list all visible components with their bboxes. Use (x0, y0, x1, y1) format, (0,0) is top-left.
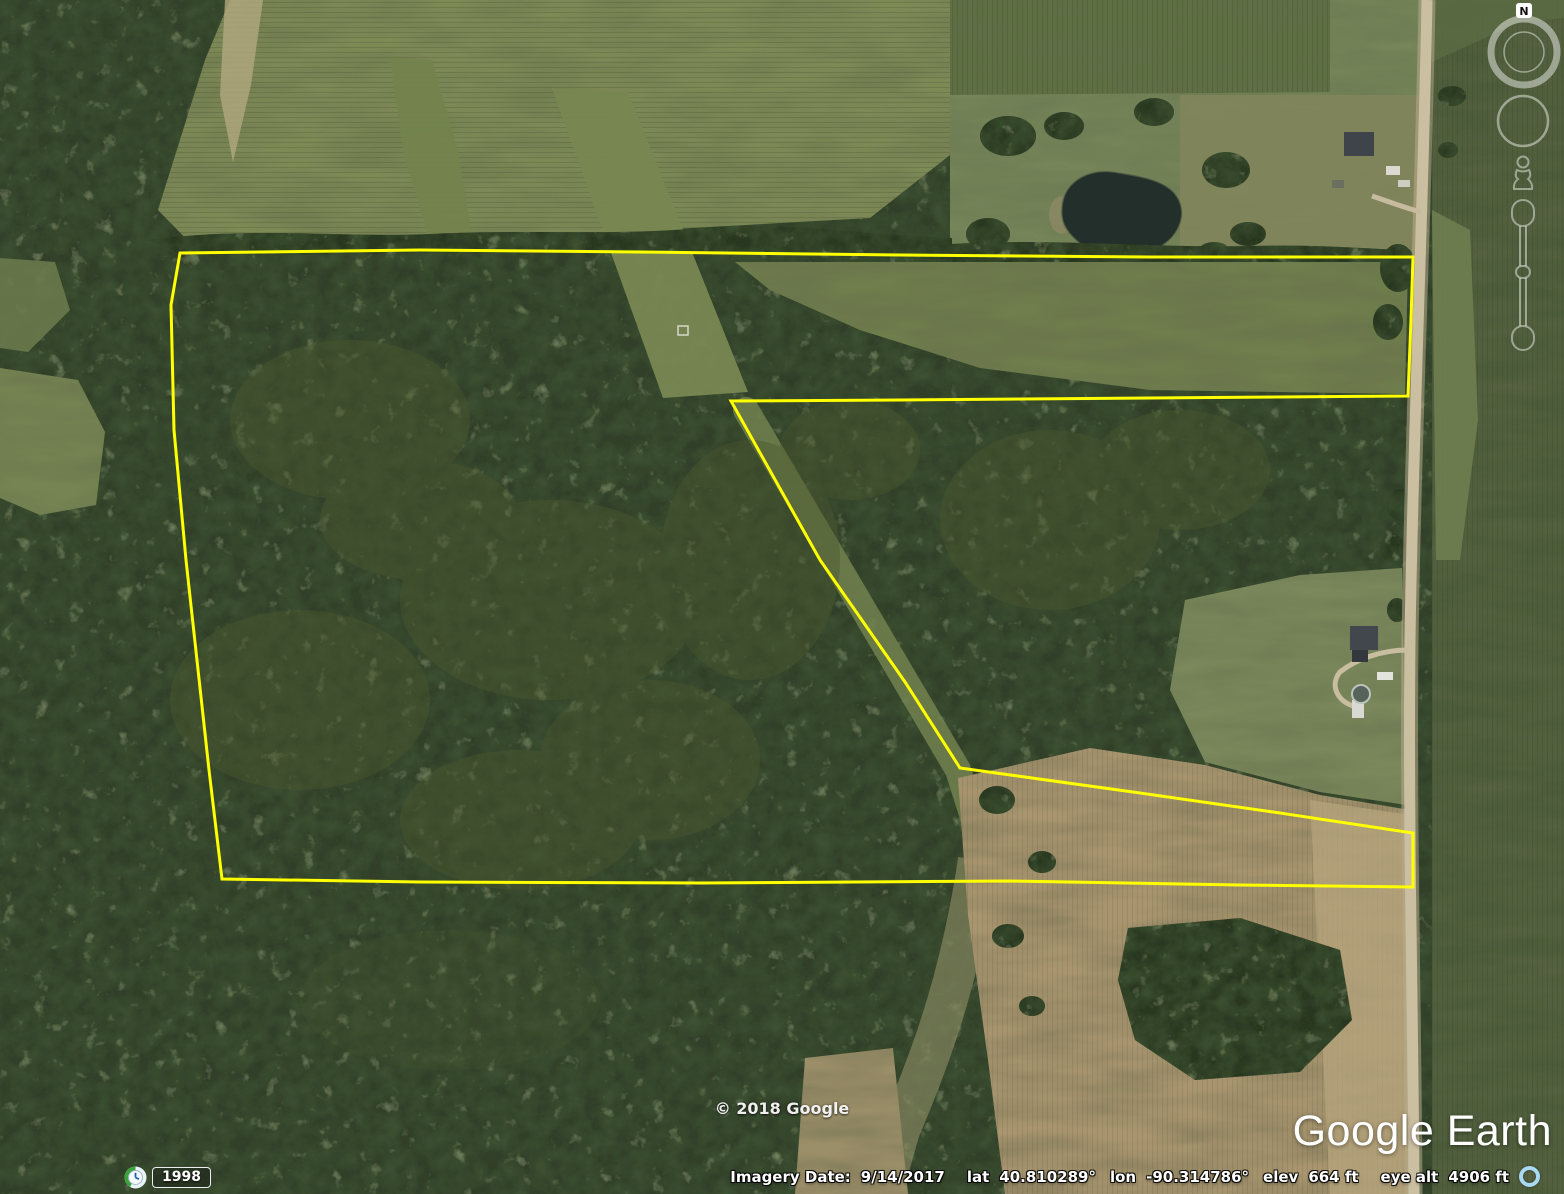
corn-rows (950, 0, 1330, 95)
lon-label: lon (1110, 1168, 1136, 1186)
eye-alt-value: 4906 ft (1448, 1168, 1509, 1186)
imagery-date-value: 9/14/2017 (861, 1168, 945, 1186)
elev-label: elev (1263, 1168, 1298, 1186)
time-year-box[interactable]: 1998 (152, 1167, 211, 1188)
time-slider-control[interactable]: 1998 (124, 1166, 211, 1189)
eye-alt-label: eye alt (1381, 1168, 1439, 1186)
lat-label: lat (967, 1168, 989, 1186)
streaming-indicator-icon (1519, 1166, 1540, 1187)
status-bar: Imagery Date: 9/14/2017 lat 40.810289° l… (730, 1166, 1540, 1187)
lat-value: 40.810289° (999, 1168, 1096, 1186)
north-label: N (1519, 5, 1528, 18)
google-earth-viewport[interactable]: N 1998 © 2018 Google (0, 0, 1564, 1194)
pond (1062, 171, 1182, 254)
imagery-date-label: Imagery Date: (730, 1168, 851, 1186)
google-earth-logo: Google Earth (1293, 1107, 1552, 1156)
imagery-layer (0, 0, 1564, 1194)
satellite-map[interactable]: N (0, 0, 1564, 1194)
corn-east-rows (1432, 0, 1564, 1194)
lon-value: -90.314786° (1146, 1168, 1249, 1186)
field-rows (158, 0, 950, 248)
elev-value: 664 ft (1308, 1168, 1358, 1186)
historical-imagery-clock-icon[interactable] (124, 1166, 147, 1189)
